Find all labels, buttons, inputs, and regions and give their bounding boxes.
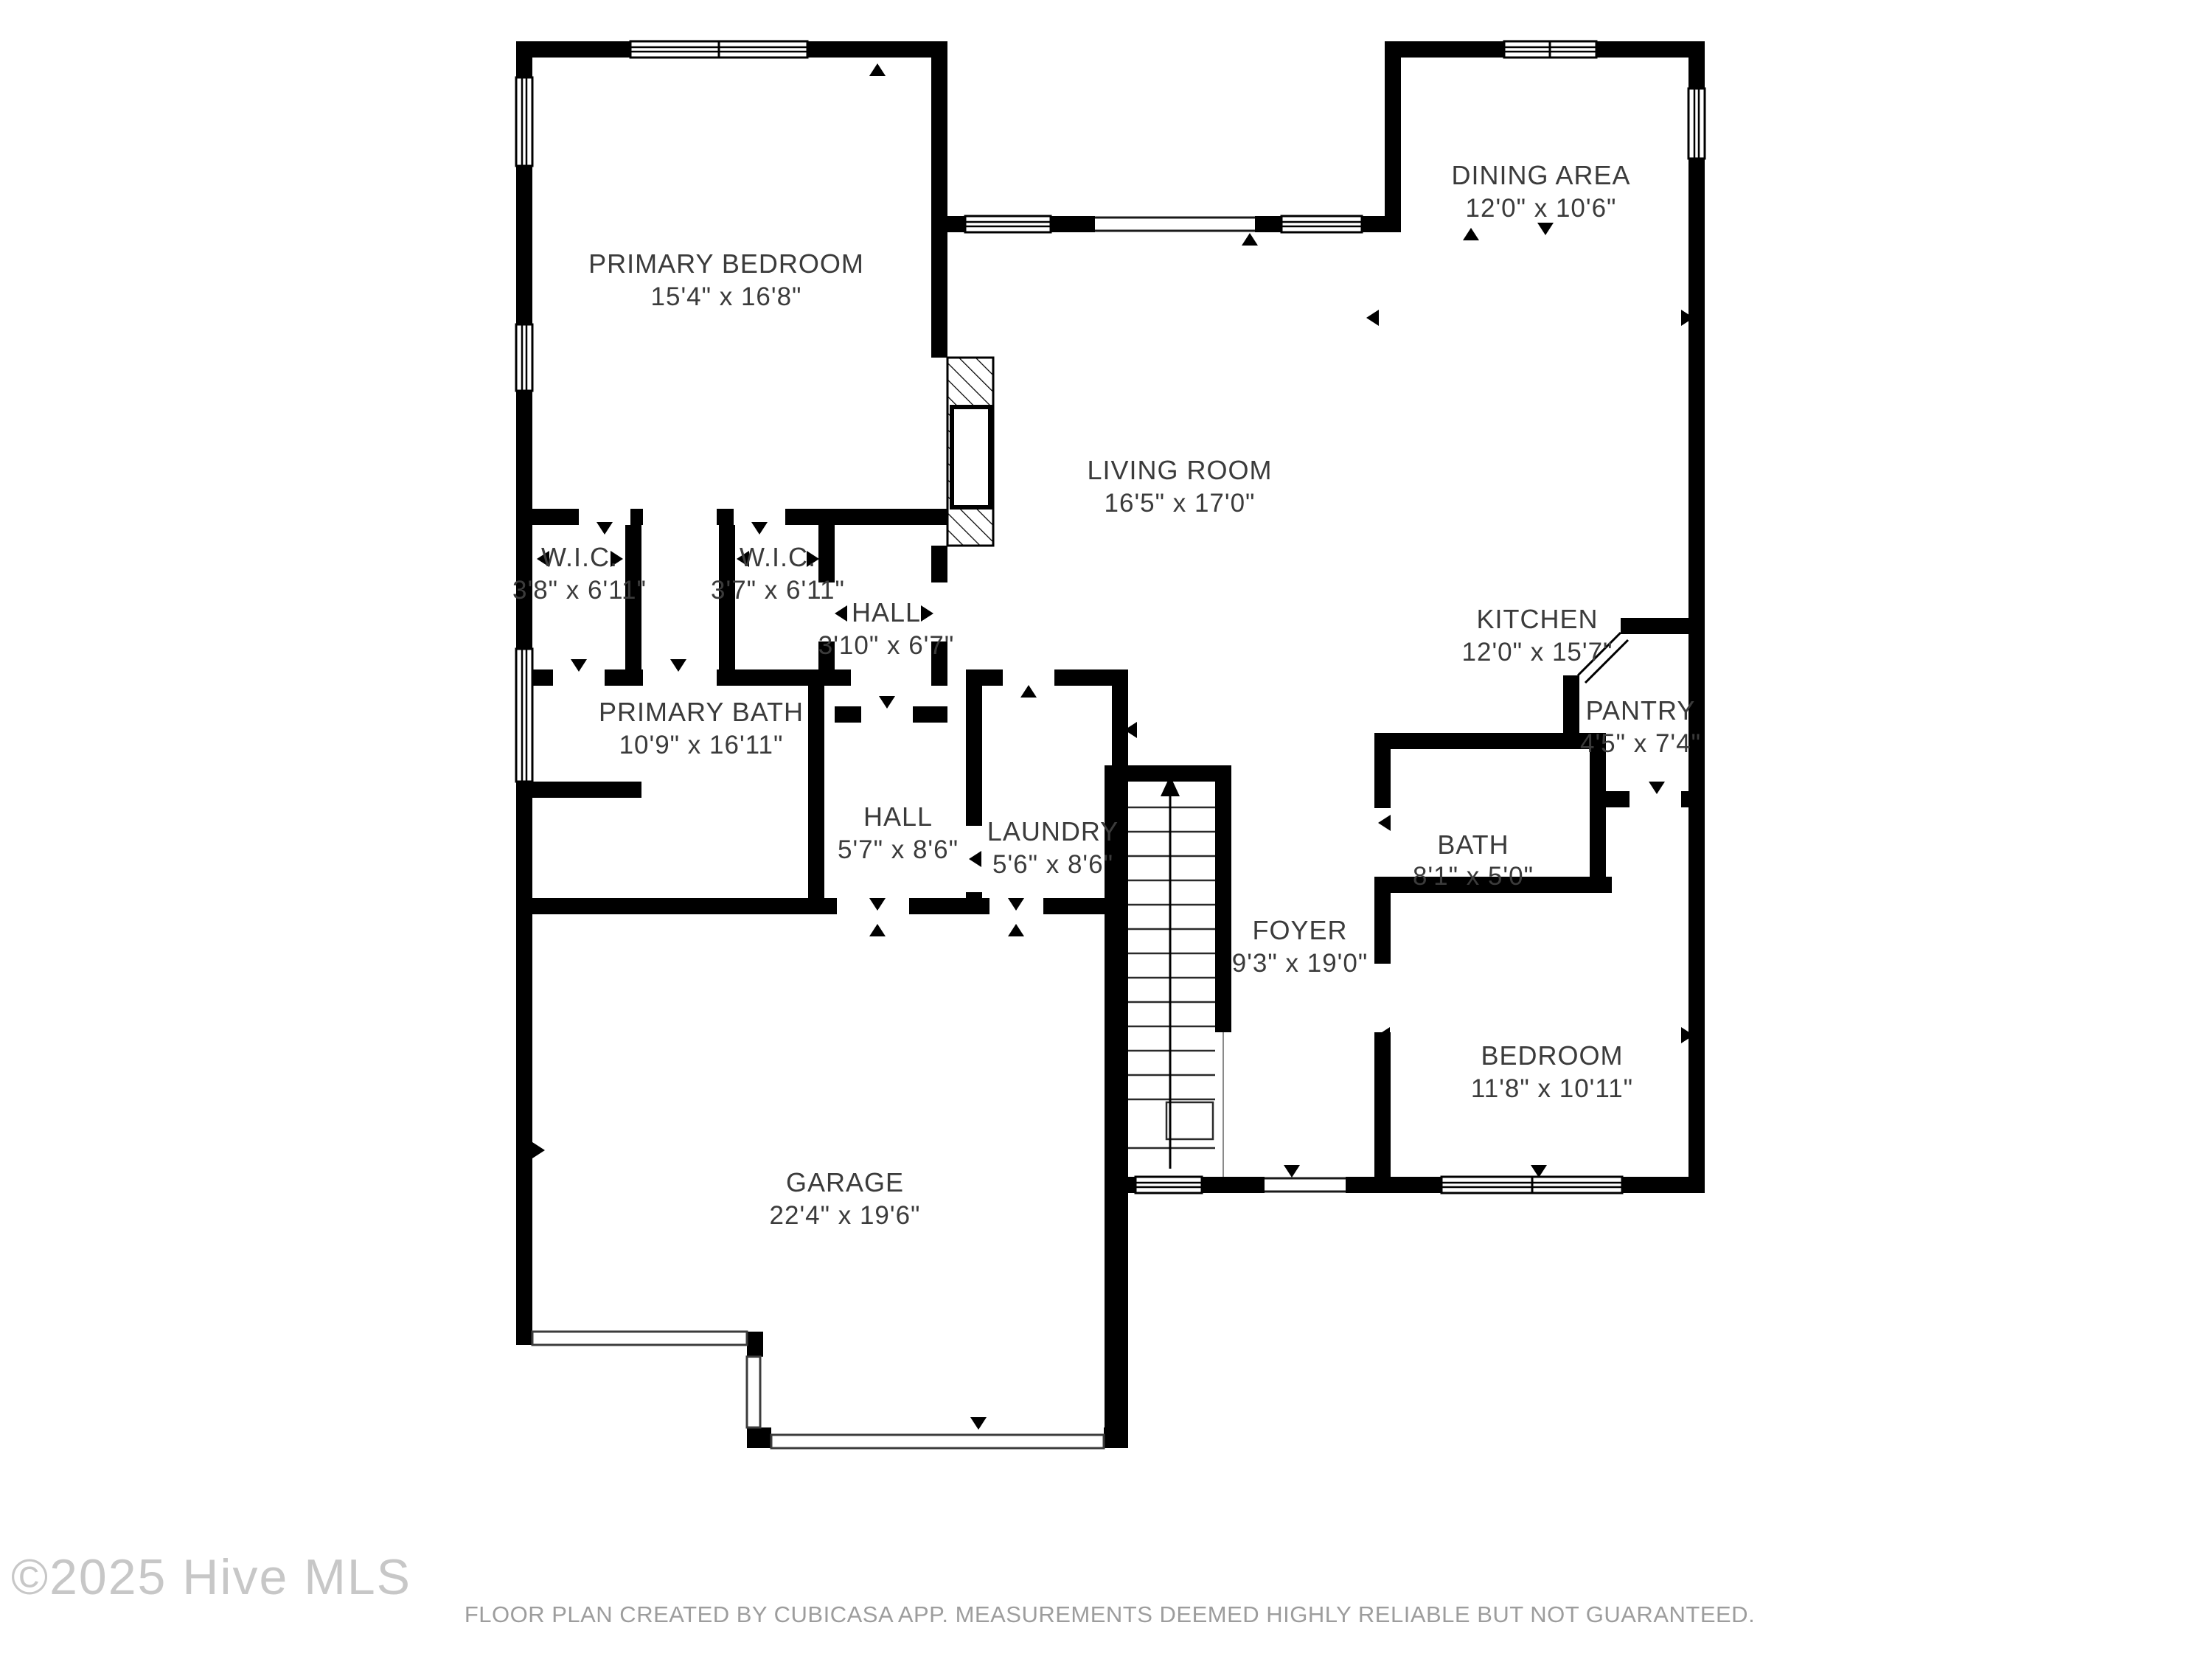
svg-text:PANTRY: PANTRY [1586, 695, 1696, 726]
svg-text:15'4" x 16'8": 15'4" x 16'8" [651, 282, 802, 311]
svg-text:PRIMARY BEDROOM: PRIMARY BEDROOM [588, 248, 864, 279]
svg-text:BATH: BATH [1437, 829, 1509, 860]
svg-text:DINING AREA: DINING AREA [1451, 160, 1630, 190]
fireplace [947, 358, 993, 546]
svg-text:10'9" x 16'11": 10'9" x 16'11" [619, 731, 784, 759]
svg-text:12'0" x 15'7": 12'0" x 15'7" [1462, 638, 1613, 667]
front-door-opening [1265, 1177, 1346, 1193]
svg-text:W.I.C.: W.I.C. [541, 542, 618, 572]
stair-landing [1166, 1102, 1213, 1139]
window [1550, 41, 1596, 58]
window [630, 41, 719, 58]
svg-text:16'5" x 17'0": 16'5" x 17'0" [1105, 489, 1256, 518]
window [516, 324, 532, 391]
svg-text:HALL: HALL [863, 801, 933, 832]
svg-text:12'0" x 10'6": 12'0" x 10'6" [1466, 194, 1617, 223]
svg-text:HALL: HALL [852, 597, 921, 627]
window [1504, 41, 1550, 58]
svg-text:5'6" x 8'6": 5'6" x 8'6" [992, 850, 1113, 879]
svg-text:GARAGE: GARAGE [786, 1167, 904, 1197]
svg-text:3'8" x 6'11": 3'8" x 6'11" [512, 576, 647, 605]
svg-text:FOYER: FOYER [1252, 915, 1347, 945]
svg-text:4'5" x 7'4": 4'5" x 7'4" [1580, 729, 1701, 758]
watermark-text: ©2025 Hive MLS [11, 1549, 411, 1605]
window [1688, 88, 1705, 159]
window [965, 216, 1051, 232]
footer-disclaimer: FLOOR PLAN CREATED BY CUBICASA APP. MEAS… [465, 1601, 1755, 1627]
svg-text:LAUNDRY: LAUNDRY [987, 816, 1119, 846]
svg-text:11'8" x 10'11": 11'8" x 10'11" [1471, 1074, 1633, 1103]
svg-text:3'10" x 6'7": 3'10" x 6'7" [818, 631, 955, 660]
svg-text:5'7" x 8'6": 5'7" x 8'6" [838, 835, 959, 864]
garage-door [532, 1332, 747, 1345]
svg-text:LIVING ROOM: LIVING ROOM [1087, 455, 1272, 485]
svg-text:8'1" x 5'0": 8'1" x 5'0" [1413, 862, 1534, 891]
window [1532, 1177, 1622, 1193]
window [1135, 1177, 1202, 1193]
garage-door [771, 1435, 1104, 1448]
svg-text:9'3" x 19'0": 9'3" x 19'0" [1232, 949, 1368, 978]
garage-door-side [747, 1357, 760, 1427]
svg-text:W.I.C.: W.I.C. [740, 542, 816, 572]
svg-text:22'4" x 19'6": 22'4" x 19'6" [770, 1201, 921, 1230]
wall-opening [1095, 216, 1255, 232]
svg-text:BEDROOM: BEDROOM [1481, 1040, 1623, 1071]
window [1281, 216, 1362, 232]
svg-text:PRIMARY BATH: PRIMARY BATH [599, 697, 804, 727]
floor-plan-canvas: PRIMARY BEDROOM 15'4" x 16'8" DINING ARE… [0, 0, 2212, 1659]
window [516, 649, 532, 782]
window [719, 41, 807, 58]
window [516, 77, 532, 166]
svg-text:3'7" x 6'11": 3'7" x 6'11" [711, 576, 845, 605]
window [1441, 1177, 1532, 1193]
svg-text:KITCHEN: KITCHEN [1476, 604, 1598, 634]
floor-plan-page: PRIMARY BEDROOM 15'4" x 16'8" DINING ARE… [0, 0, 2212, 1659]
